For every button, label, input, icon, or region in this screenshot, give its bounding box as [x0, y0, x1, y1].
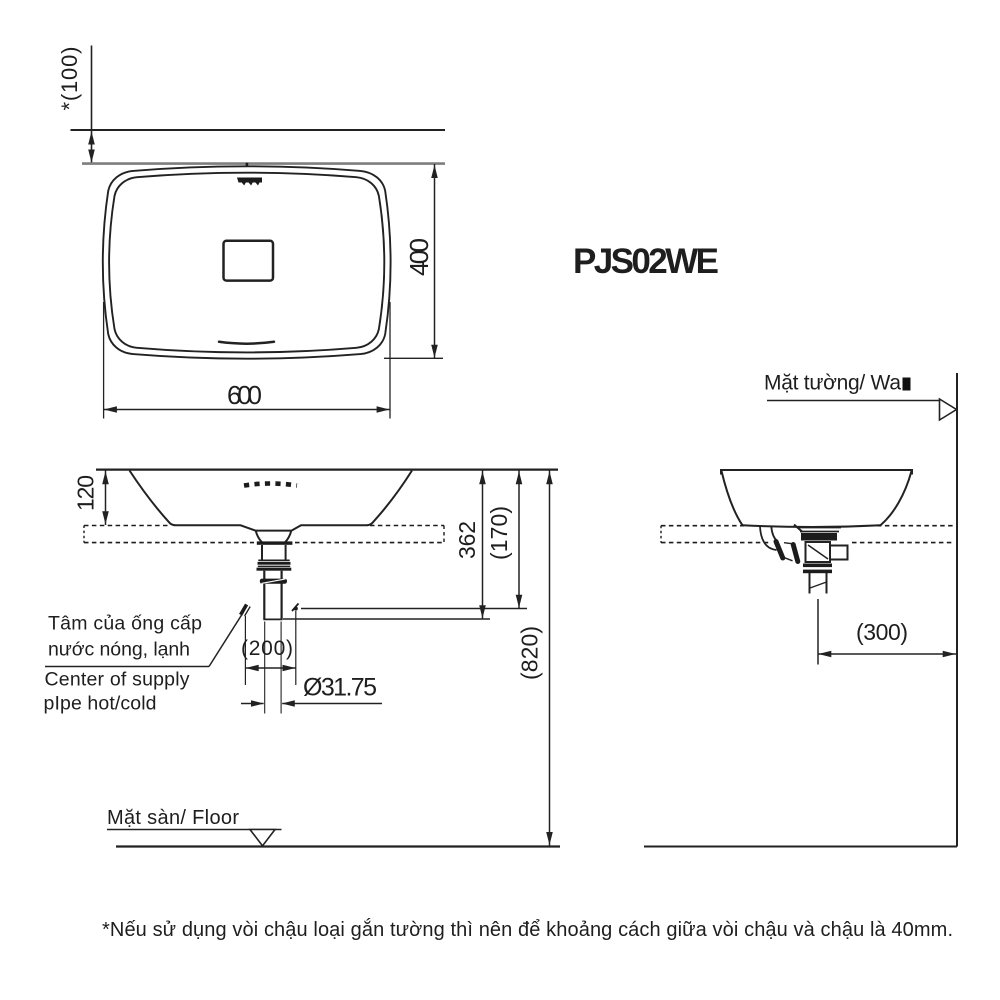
svg-text:(300): (300)	[856, 619, 908, 645]
svg-text:362: 362	[454, 521, 480, 559]
svg-text:(820): (820)	[517, 626, 543, 680]
svg-text:Mặt sàn/ Floor: Mặt sàn/ Floor	[107, 807, 239, 829]
svg-text:*(100): *(100)	[57, 47, 82, 111]
svg-text:pIpe hot/cold: pIpe hot/cold	[44, 693, 157, 715]
svg-text:PJS02WE: PJS02WE	[573, 242, 719, 281]
svg-text:600: 600	[227, 380, 262, 410]
svg-text:nước nóng, lạnh: nước nóng, lạnh	[48, 639, 190, 661]
svg-text:Tâm của ống cấp: Tâm của ống cấp	[48, 613, 202, 635]
svg-text:Ø31.75: Ø31.75	[303, 674, 377, 702]
svg-text:(170): (170)	[486, 506, 512, 560]
svg-text:(200): (200)	[241, 637, 293, 660]
svg-text:*Nếu sử dụng vòi chậu loại gắn: *Nếu sử dụng vòi chậu loại gắn tường thì…	[102, 918, 953, 941]
svg-text:400: 400	[404, 238, 434, 276]
svg-text:Mặt tường/ Wa: Mặt tường/ Wa	[764, 372, 901, 395]
svg-text:Center of supply: Center of supply	[45, 669, 190, 691]
svg-text:120: 120	[73, 475, 99, 511]
